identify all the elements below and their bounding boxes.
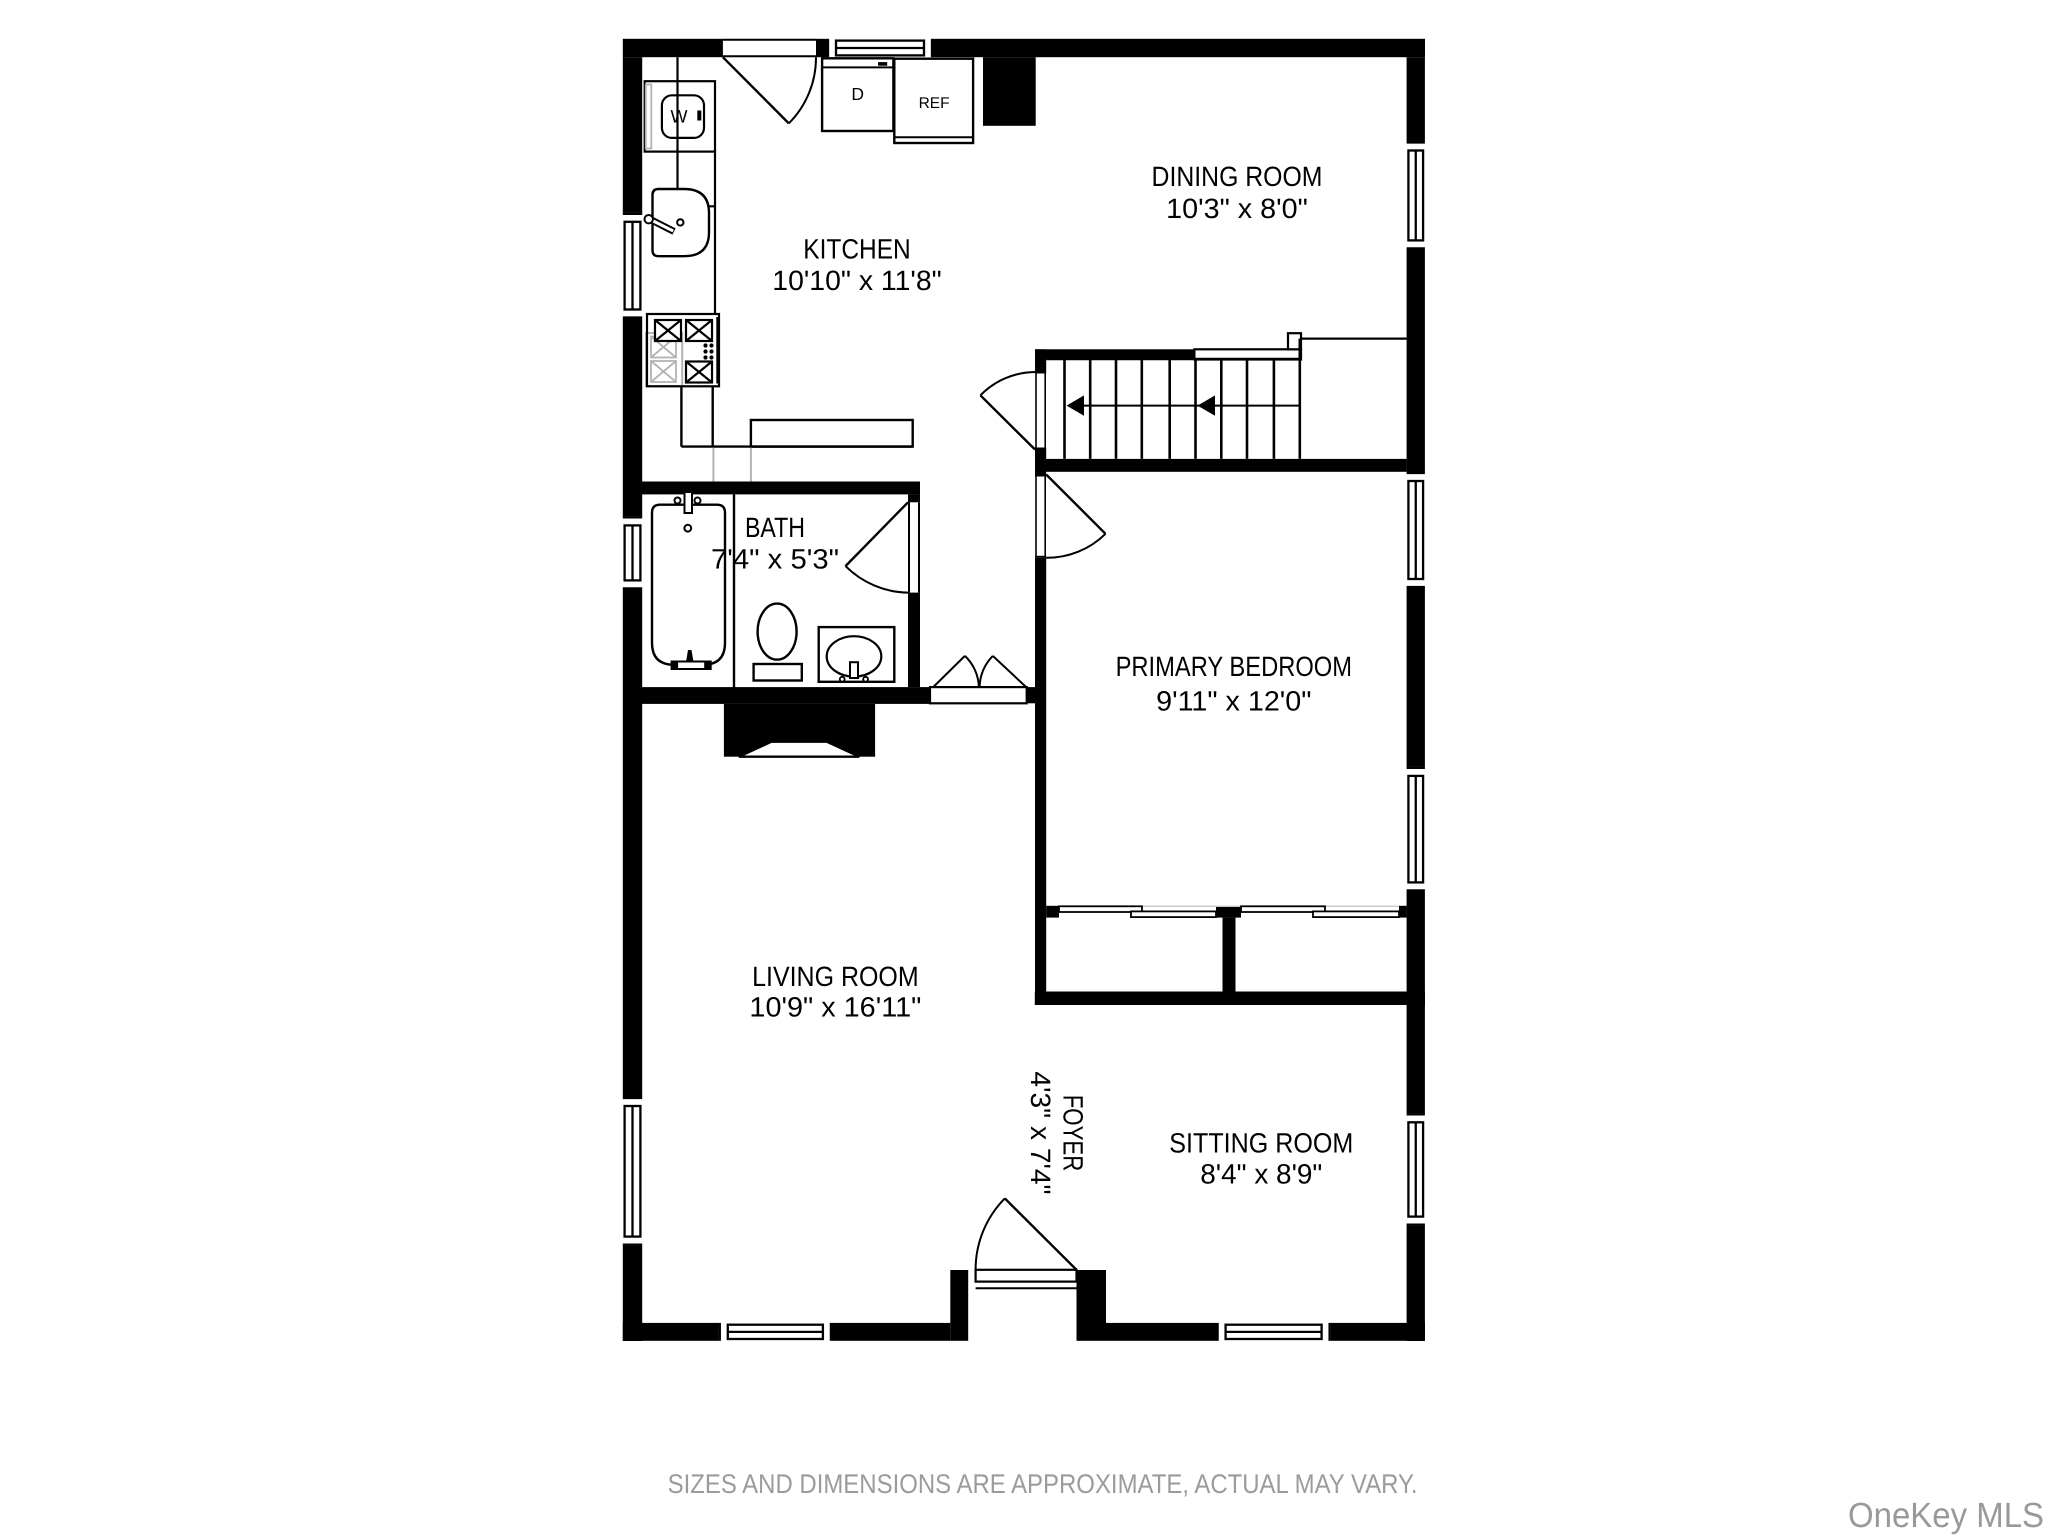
svg-text:SITTING ROOM: SITTING ROOM: [1169, 1127, 1353, 1158]
svg-text:PRIMARY BEDROOM: PRIMARY BEDROOM: [1116, 651, 1352, 682]
svg-text:10'10" x 11'8": 10'10" x 11'8": [772, 265, 941, 296]
svg-text:7'4" x 5'3": 7'4" x 5'3": [711, 544, 839, 575]
svg-text:D: D: [851, 84, 864, 104]
svg-text:4'3" x 7'4": 4'3" x 7'4": [1025, 1071, 1056, 1194]
svg-text:LIVING ROOM: LIVING ROOM: [752, 961, 919, 992]
svg-text:BATH: BATH: [745, 512, 805, 543]
svg-text:SIZES AND DIMENSIONS ARE APPRO: SIZES AND DIMENSIONS ARE APPROXIMATE, AC…: [668, 1469, 1418, 1499]
svg-text:FOYER: FOYER: [1057, 1095, 1088, 1172]
svg-text:W: W: [671, 107, 688, 127]
svg-text:10'3" x 8'0": 10'3" x 8'0": [1166, 193, 1308, 224]
svg-text:OneKey MLS: OneKey MLS: [1848, 1496, 2044, 1535]
svg-text:8'4" x 8'9": 8'4" x 8'9": [1200, 1158, 1322, 1189]
svg-text:9'11" x 12'0": 9'11" x 12'0": [1156, 686, 1311, 717]
svg-text:DINING ROOM: DINING ROOM: [1152, 161, 1323, 192]
svg-text:10'9" x 16'11": 10'9" x 16'11": [749, 992, 921, 1023]
svg-text:KITCHEN: KITCHEN: [803, 233, 910, 264]
svg-text:REF: REF: [919, 95, 950, 112]
